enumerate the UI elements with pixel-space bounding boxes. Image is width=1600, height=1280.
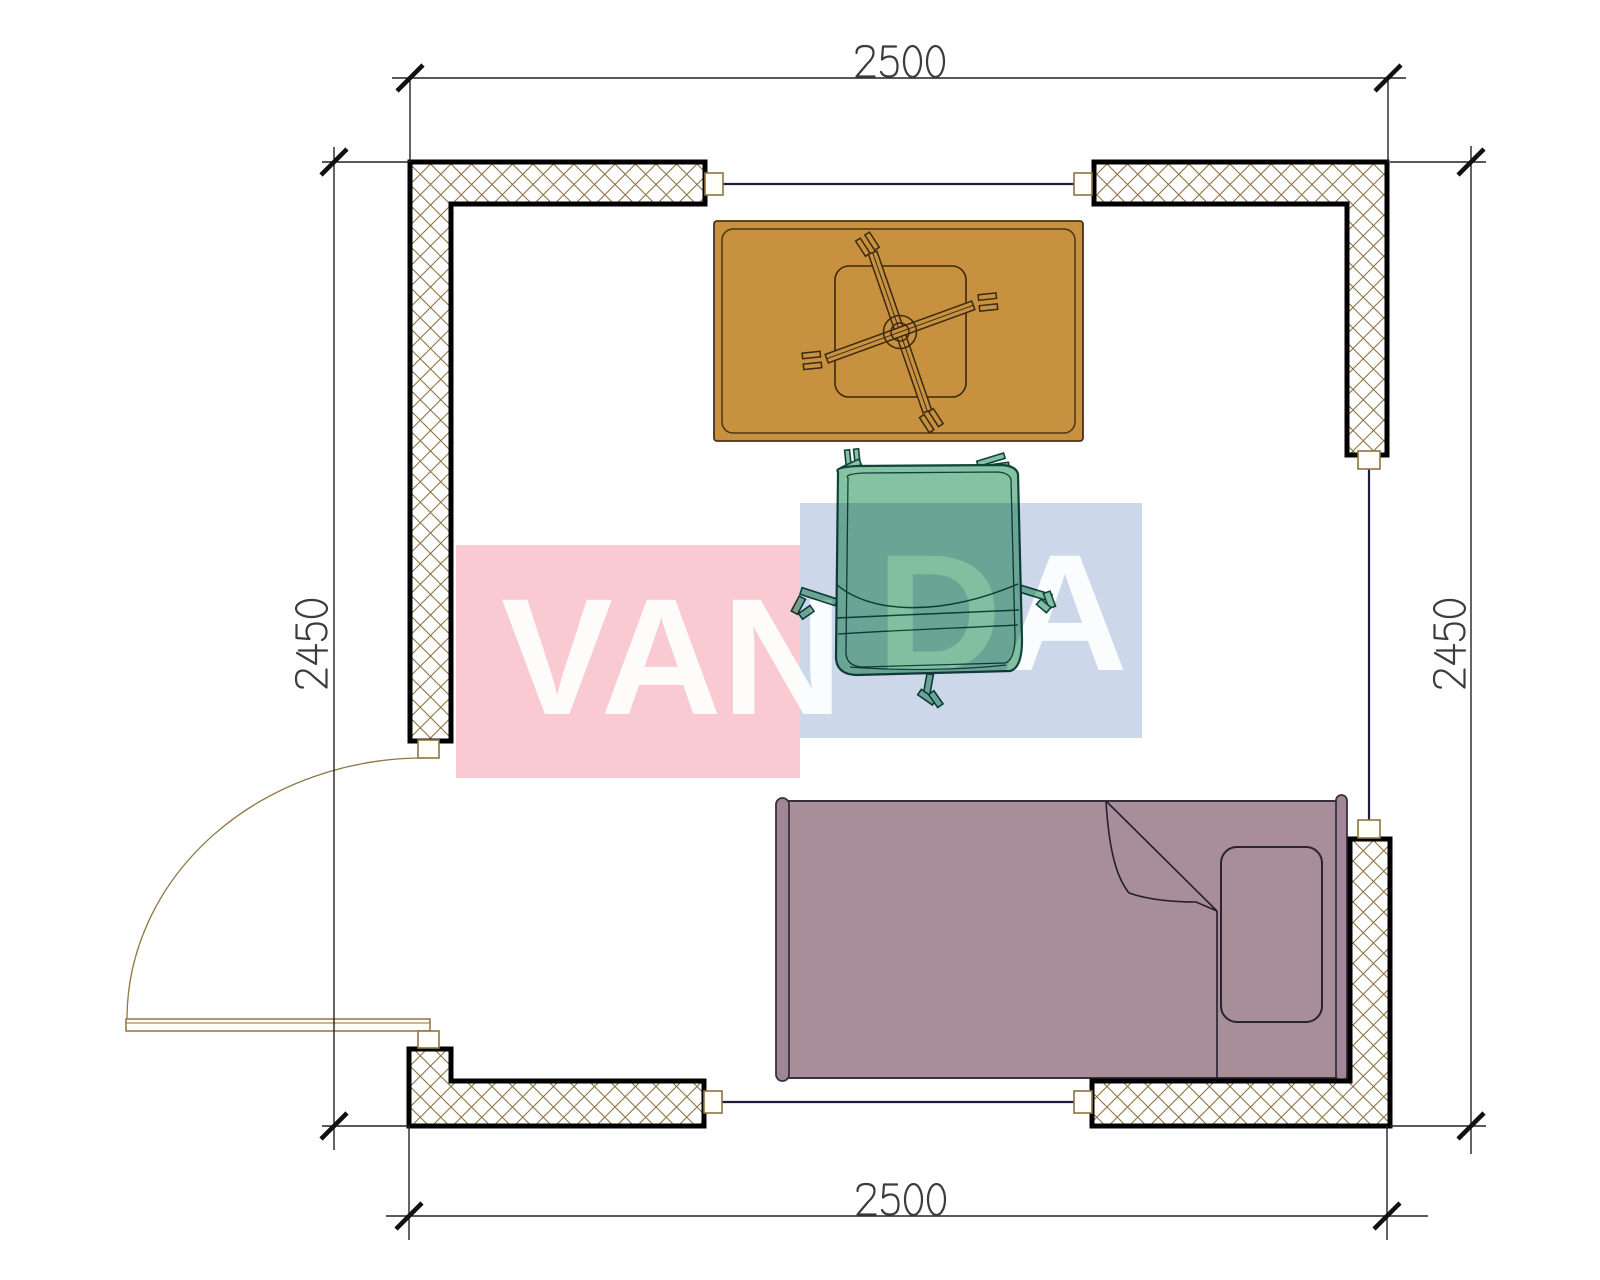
svg-text:VAN: VAN [501,565,843,750]
